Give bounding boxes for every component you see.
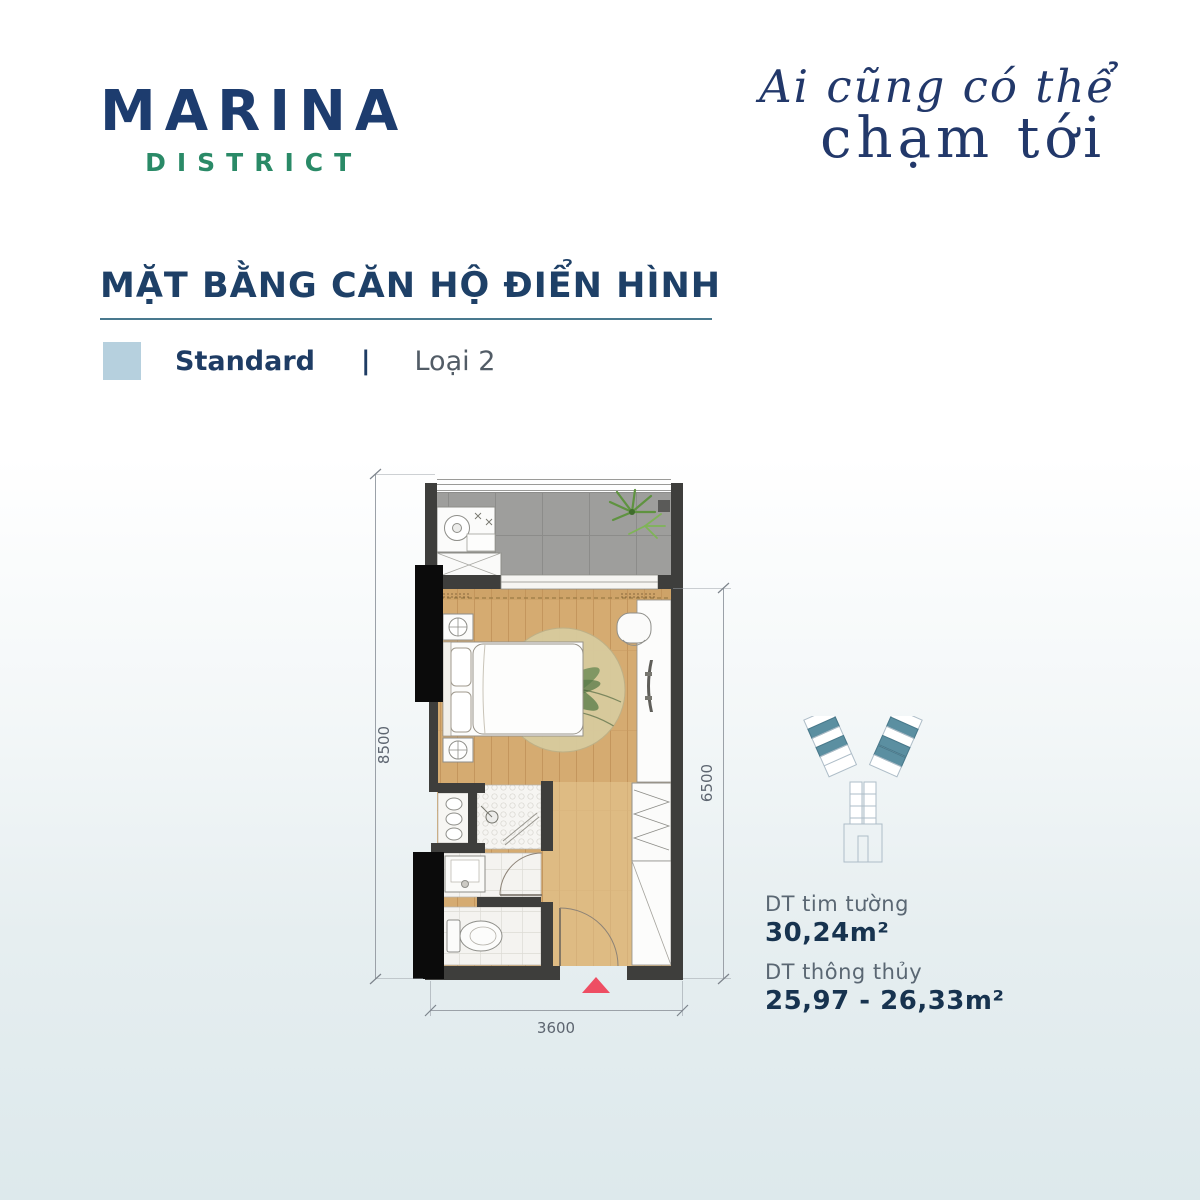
brand-name: MARINA: [100, 84, 407, 140]
dim-right-label: 6500: [698, 764, 716, 802]
legend-type-label: Standard: [175, 346, 315, 377]
title-underline: [100, 318, 712, 320]
floor-plan-svg: 8500 6500 3600: [355, 450, 745, 1040]
brand-logo: MARINA DISTRICT: [100, 84, 407, 177]
key-plan: [770, 716, 960, 868]
area-info: DT tim tường 30,24m² DT thông thủy 25,97…: [765, 892, 1004, 1028]
tagline-line2: chạm tới: [759, 106, 1106, 171]
net-area-value: 25,97 - 26,33m²: [765, 986, 1004, 1016]
balcony: [437, 480, 671, 579]
nightstand-bottom: [443, 738, 473, 762]
net-area-label: DT thông thủy: [765, 960, 1004, 984]
nightstand-top: [443, 614, 473, 640]
tagline-line1: Ai cũng có thể: [759, 62, 1116, 112]
chair: [617, 613, 651, 645]
dim-left-label: 8500: [375, 726, 393, 764]
balcony-sliding-door: [437, 575, 671, 589]
unit-legend: Standard | Loại 2: [103, 342, 495, 380]
gross-area-label: DT tim tường: [765, 892, 1004, 916]
balcony-shelf: [437, 553, 501, 577]
poster-page: MARINA DISTRICT Ai cũng có thể chạm tới …: [0, 0, 1200, 1200]
bed: [443, 642, 583, 736]
entry-arrow-icon: [582, 977, 610, 993]
legend-separator: |: [361, 346, 371, 376]
closet-open: [632, 861, 671, 965]
vanity-sink: [445, 856, 485, 892]
washing-machine: [437, 507, 495, 552]
floor-plan: 8500 6500 3600: [355, 450, 745, 1040]
tagline: Ai cũng có thể chạm tới: [759, 62, 1116, 171]
toilet: [447, 920, 502, 952]
bathroom: [438, 785, 542, 965]
legend-variant-label: Loại 2: [414, 346, 495, 377]
dim-bottom-label: 3600: [537, 1019, 575, 1037]
gross-area-value: 30,24m²: [765, 918, 1004, 948]
balcony-drain: [658, 500, 670, 512]
legend-color-swatch: [103, 342, 141, 380]
key-plan-svg: [770, 716, 960, 868]
page-title: MẶT BẰNG CĂN HỘ ĐIỂN HÌNH: [100, 266, 721, 306]
brand-subtitle: DISTRICT: [100, 148, 407, 177]
wardrobe: [632, 783, 671, 861]
